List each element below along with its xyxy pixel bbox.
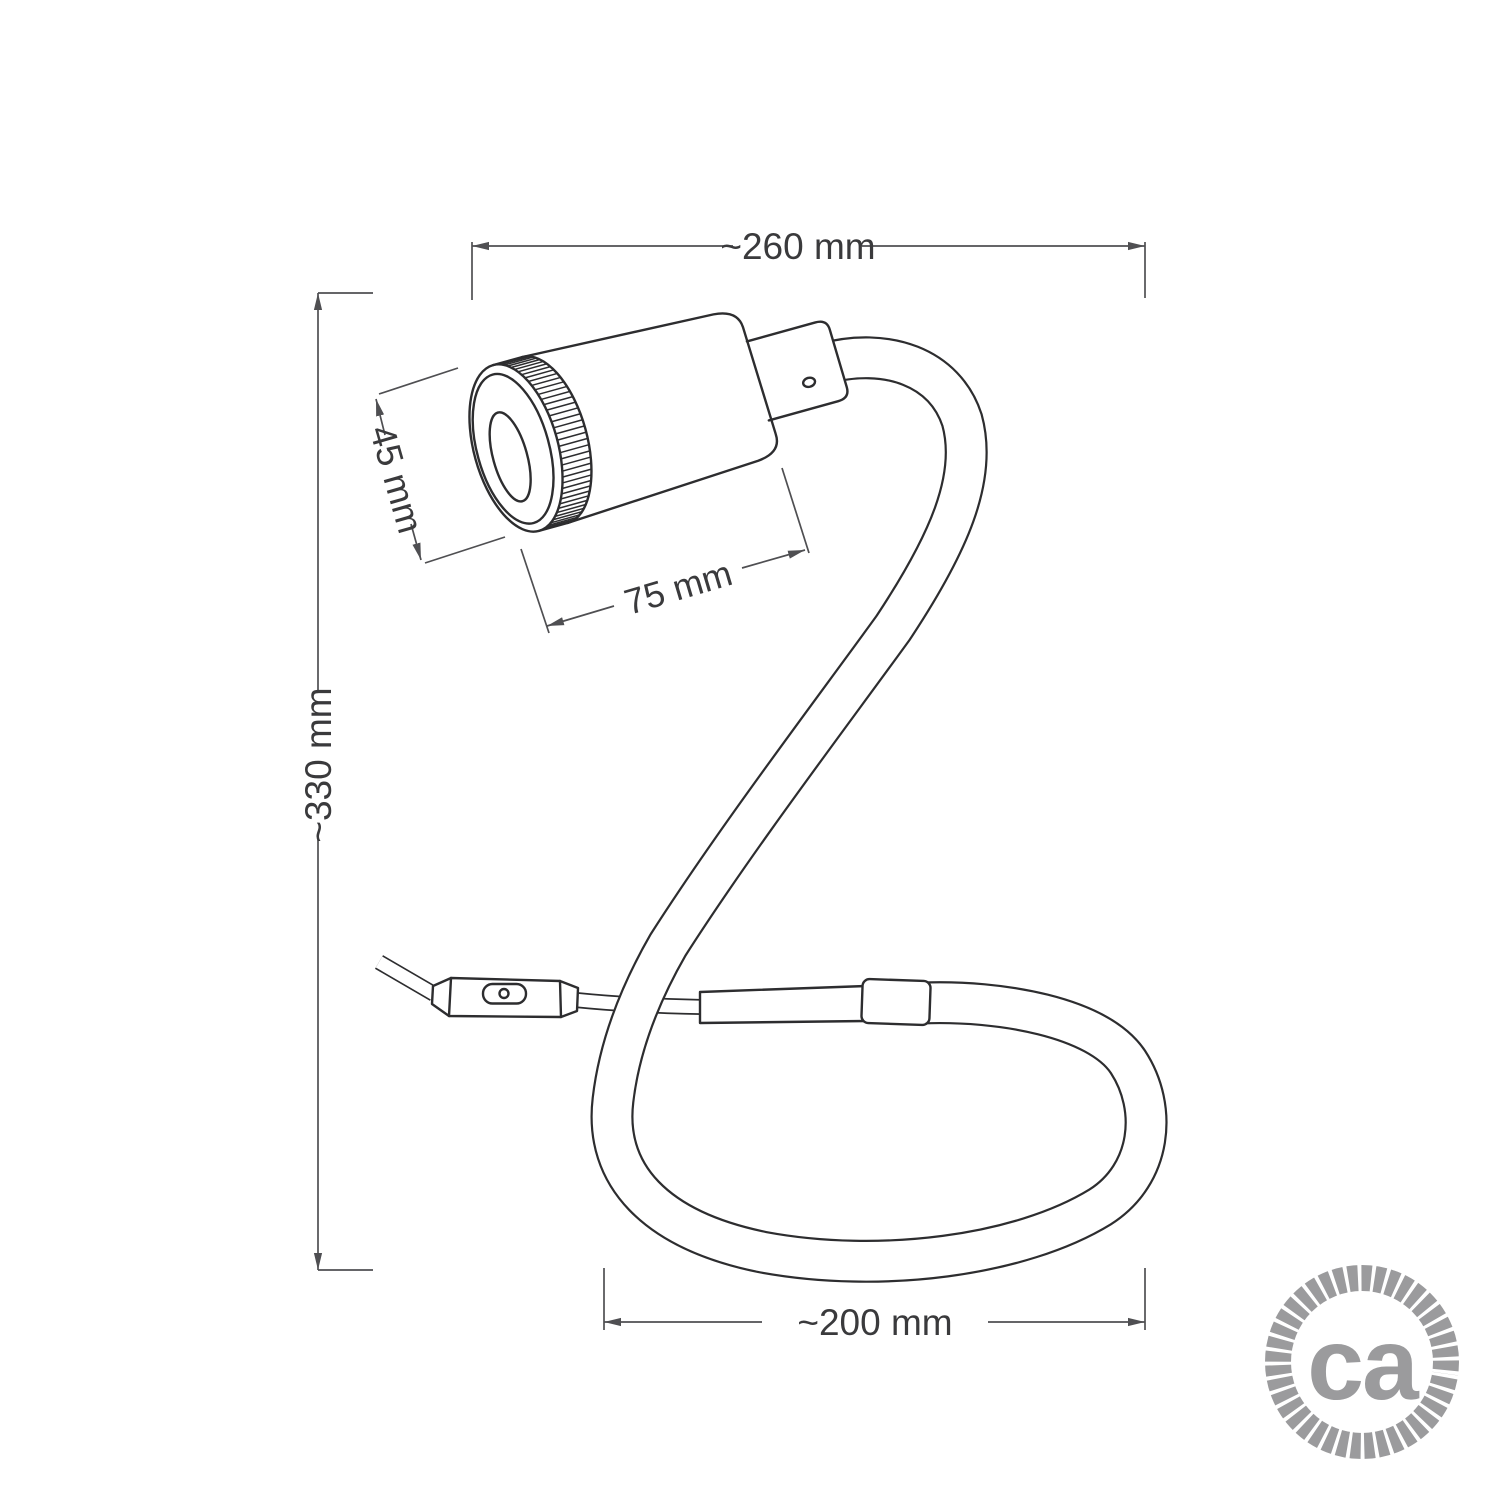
dimension-label-height: ~330 mm <box>298 687 339 842</box>
cable-sleeve <box>700 986 866 1023</box>
brand-logo: ca <box>1267 1267 1457 1457</box>
logo-text: ca <box>1307 1307 1420 1421</box>
product-dimension-drawing: ~260 mm ~330 mm 45 mm 75 mm ~200 mm <box>0 0 1500 1500</box>
extension-line <box>521 549 549 633</box>
technical-drawing-canvas: ~260 mm ~330 mm 45 mm 75 mm ~200 mm <box>0 0 1500 1500</box>
gooseneck-tube <box>612 358 1146 1261</box>
extension-line <box>379 368 458 394</box>
dimension-line <box>742 550 805 568</box>
dimension-height-330: ~330 mm <box>298 293 373 1270</box>
dimension-label-width: ~260 mm <box>720 226 875 267</box>
inline-switch <box>432 978 578 1017</box>
cable-ferrule <box>861 979 930 1025</box>
extension-line <box>425 537 505 563</box>
dimension-label-spot-diameter: 45 mm <box>362 421 432 538</box>
dimension-line <box>547 606 614 626</box>
dimension-label-base-width: ~200 mm <box>797 1302 952 1343</box>
dimension-label-spot-length: 75 mm <box>620 552 737 623</box>
extension-line <box>782 468 809 553</box>
lamp-head <box>453 276 862 542</box>
dimension-width-260: ~260 mm <box>472 226 1145 300</box>
